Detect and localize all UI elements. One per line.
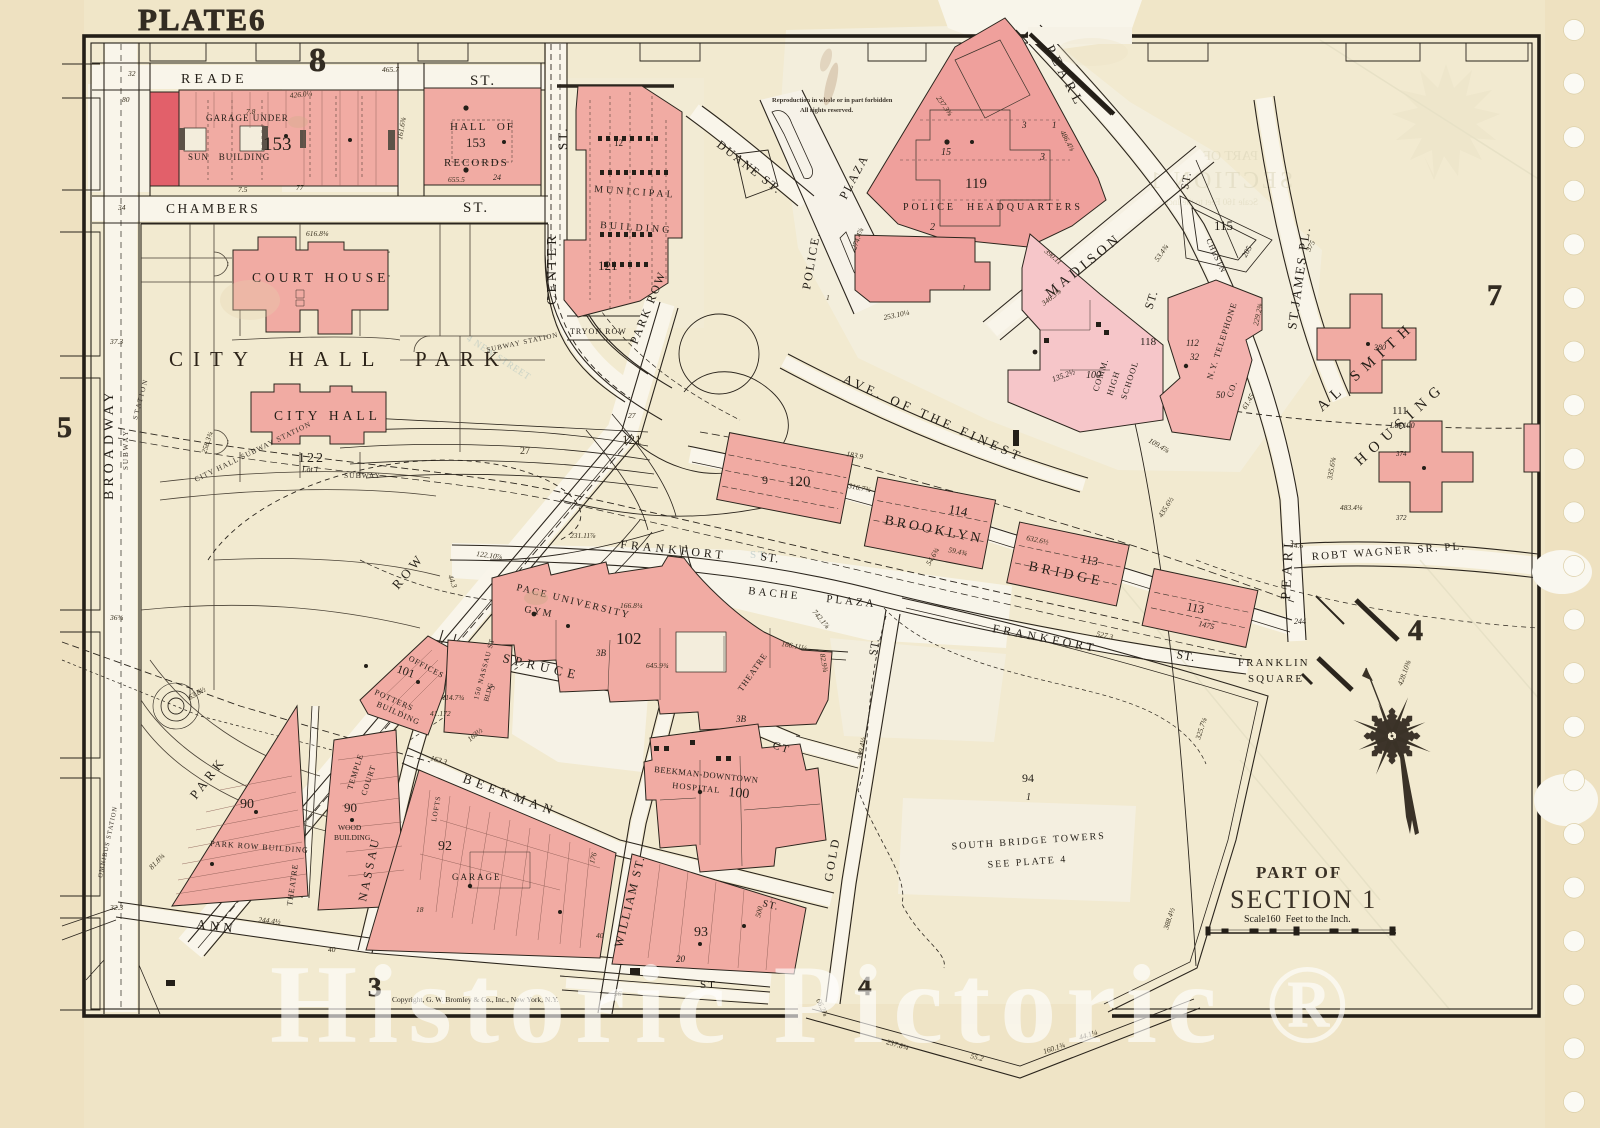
svg-text:37.3: 37.3 (109, 337, 123, 346)
svg-text:27: 27 (520, 446, 530, 457)
svg-text:32: 32 (127, 69, 136, 78)
svg-text:8: 8 (309, 42, 326, 79)
svg-text:34: 34 (117, 203, 126, 212)
svg-text:CITY HALL: CITY HALL (274, 408, 381, 423)
svg-text:PLATE6: PLATE6 (138, 2, 267, 37)
svg-text:BUILDING: BUILDING (334, 833, 371, 842)
svg-text:5: 5 (57, 411, 72, 444)
svg-text:119: 119 (965, 176, 987, 192)
svg-text:ST.: ST. (555, 127, 570, 150)
svg-text:SECTION 1: SECTION 1 (1147, 168, 1293, 194)
svg-text:465.7: 465.7 (382, 65, 399, 74)
svg-text:41.172: 41.172 (430, 709, 451, 718)
svg-text:32: 32 (1189, 352, 1200, 362)
svg-text:40: 40 (596, 931, 604, 940)
svg-text:7.5: 7.5 (238, 185, 248, 194)
svg-text:112: 112 (1186, 338, 1199, 348)
svg-text:3B: 3B (595, 648, 607, 658)
svg-text:153: 153 (466, 135, 486, 150)
svg-text:PART OF: PART OF (1203, 149, 1258, 164)
svg-text:READE: READE (181, 72, 248, 87)
svg-text:Lot 100: Lot 100 (1389, 421, 1415, 430)
svg-text:2: 2 (930, 222, 935, 233)
svg-text:Historic Pictoric ®: Historic Pictoric ® (270, 943, 1358, 1067)
svg-text:SECTION 1: SECTION 1 (1230, 885, 1377, 914)
svg-text:SUBWAY: SUBWAY (344, 471, 381, 480)
svg-text:166.8¼: 166.8¼ (620, 601, 643, 610)
svg-text:FRANKLIN: FRANKLIN (1238, 657, 1310, 669)
svg-text:All rights reserved.: All rights reserved. (800, 107, 854, 114)
svg-text:ST.: ST. (463, 200, 489, 216)
svg-text:TRYON ROW: TRYON ROW (570, 327, 627, 336)
svg-text:PART OF: PART OF (1256, 863, 1342, 882)
svg-text:SUN BUILDING: SUN BUILDING (188, 152, 270, 162)
svg-text:121: 121 (598, 258, 618, 273)
svg-text:231.11⅞: 231.11⅞ (570, 531, 596, 540)
svg-text:POLICE HEADQUARTERS: POLICE HEADQUARTERS (903, 202, 1083, 213)
svg-text:3: 3 (1021, 120, 1027, 130)
svg-text:374: 374 (1395, 450, 1407, 458)
svg-text:1: 1 (1052, 120, 1057, 130)
svg-text:7: 7 (1487, 279, 1502, 312)
svg-text:118: 118 (1140, 336, 1157, 348)
svg-text:94: 94 (1022, 771, 1034, 785)
svg-text:COURT HOUSE: COURT HOUSE (252, 270, 389, 285)
svg-text:1: 1 (1026, 792, 1031, 803)
svg-text:ST.: ST. (760, 549, 781, 566)
svg-text:74.6: 74.6 (1290, 541, 1303, 550)
svg-text:1: 1 (962, 283, 966, 292)
svg-text:92: 92 (438, 839, 452, 854)
svg-text:115: 115 (1214, 218, 1233, 233)
svg-text:93: 93 (694, 925, 708, 940)
svg-text:100: 100 (728, 785, 750, 802)
svg-text:380: 380 (1373, 343, 1386, 352)
svg-text:655.5: 655.5 (448, 175, 465, 184)
svg-text:3: 3 (1039, 152, 1045, 163)
svg-text:616.8⅛: 616.8⅛ (306, 229, 329, 238)
svg-text:7.8: 7.8 (246, 107, 256, 116)
svg-text:80: 80 (122, 95, 130, 104)
svg-text:122: 122 (298, 451, 325, 466)
svg-text:120: 120 (788, 474, 811, 490)
svg-text:50: 50 (1216, 390, 1226, 400)
svg-text:HALL OF: HALL OF (450, 121, 515, 133)
svg-text:32.3: 32.3 (109, 903, 123, 912)
svg-text:CHAMBERS: CHAMBERS (166, 201, 260, 216)
svg-text:90: 90 (344, 800, 357, 815)
svg-text:244: 244 (1294, 617, 1306, 626)
svg-text:Scale160 Feet to the Inch.: Scale160 Feet to the Inch. (1244, 914, 1351, 925)
svg-text:18: 18 (416, 905, 424, 914)
svg-text:Scale 160 Feet to the Inch: Scale 160 Feet to the Inch (1164, 197, 1258, 207)
svg-text:102: 102 (616, 629, 642, 648)
svg-text:114.7¾: 114.7¾ (442, 693, 464, 702)
svg-text:3B: 3B (735, 714, 747, 724)
svg-text:Lot 1: Lot 1 (301, 465, 319, 474)
svg-text:27: 27 (628, 411, 636, 420)
svg-text:100: 100 (1086, 370, 1101, 381)
svg-text:Reproduction in whole or in pa: Reproduction in whole or in part forbidd… (772, 97, 893, 104)
svg-text:15: 15 (941, 147, 951, 158)
svg-text:121: 121 (622, 432, 642, 447)
svg-text:WOOD: WOOD (338, 823, 362, 832)
svg-text:CENTER: CENTER (545, 233, 560, 305)
svg-text:BROADWAY: BROADWAY (102, 388, 117, 500)
svg-text:153: 153 (263, 134, 292, 155)
svg-text:36¾: 36¾ (109, 613, 124, 622)
svg-text:24: 24 (493, 173, 501, 182)
svg-text:12: 12 (614, 138, 623, 148)
svg-text:77: 77 (296, 183, 304, 192)
svg-text:372: 372 (1395, 514, 1407, 522)
svg-text:SQUARE: SQUARE (1248, 673, 1304, 685)
svg-text:4: 4 (1408, 614, 1423, 647)
svg-text:CITY HALL PARK: CITY HALL PARK (169, 347, 509, 371)
svg-text:645.9¾: 645.9¾ (646, 661, 669, 670)
svg-text:GARAGE: GARAGE (452, 872, 502, 882)
svg-text:9: 9 (762, 473, 768, 487)
svg-text:SUBWAY: SUBWAY (122, 429, 130, 470)
svg-text:1: 1 (826, 293, 830, 302)
svg-text:90: 90 (240, 797, 254, 812)
svg-text:RECORDS: RECORDS (444, 157, 509, 169)
svg-text:483.4⅛: 483.4⅛ (1340, 503, 1363, 512)
svg-text:ST.: ST. (470, 73, 496, 89)
svg-text:111: 111 (1392, 405, 1408, 417)
